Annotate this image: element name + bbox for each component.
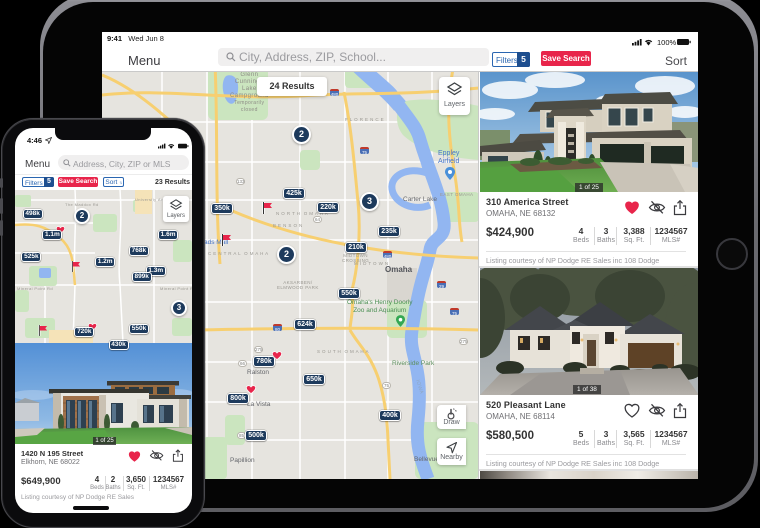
svg-text:100%: 100%	[657, 38, 677, 47]
